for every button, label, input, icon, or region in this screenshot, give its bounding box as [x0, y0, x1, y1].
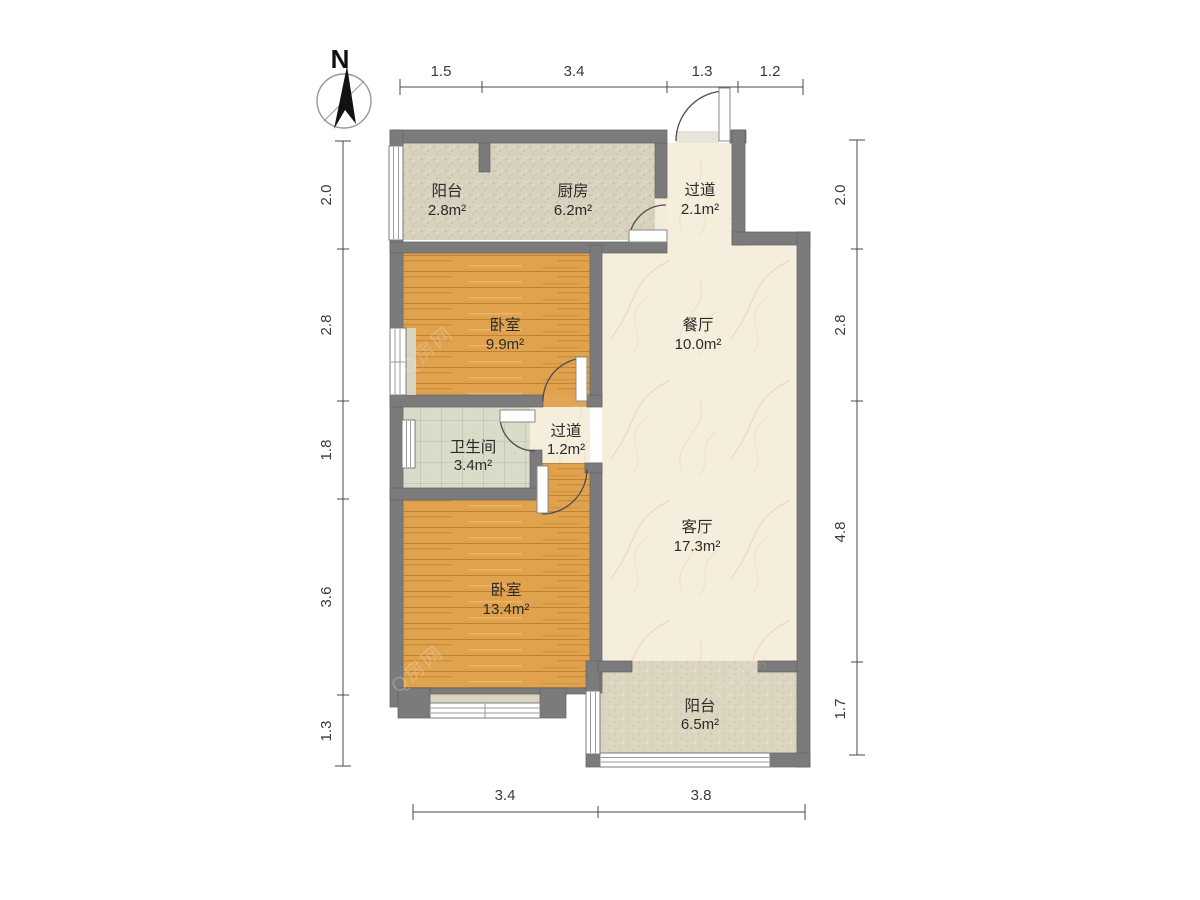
top-dimension-labels: 1.5 3.4 1.3 1.2 — [431, 63, 781, 80]
wall-segment — [540, 688, 566, 718]
room-name: 厨房 — [557, 182, 588, 200]
room-name: 过道 — [550, 422, 581, 440]
room-area: 17.3m² — [674, 538, 721, 555]
right-dimension-labels: 2.0 2.8 4.8 1.7 — [832, 185, 849, 720]
top-dimension-line — [400, 79, 803, 95]
room-area: 2.8m² — [428, 202, 466, 219]
dim-label: 3.4 — [564, 63, 585, 80]
wall-segment — [797, 232, 810, 767]
room-name: 卧室 — [490, 581, 521, 599]
room-area: 3.4m² — [454, 457, 492, 474]
bottom-dimension-labels: 3.4 3.8 — [495, 787, 712, 804]
dim-label: 3.8 — [691, 787, 712, 804]
dim-label: 1.5 — [431, 63, 452, 80]
room-name: 阳台 — [684, 697, 715, 715]
room-area: 6.2m² — [554, 202, 592, 219]
room-area: 9.9m² — [486, 336, 524, 353]
dim-label: 3.4 — [495, 787, 516, 804]
wall-segment — [390, 130, 403, 146]
wall-segment — [390, 488, 542, 500]
wall-segment — [479, 143, 490, 172]
wall-segment — [390, 395, 543, 407]
dim-label: 1.3 — [318, 721, 335, 742]
floor-plan-canvas: N 1.5 3.4 1.3 1.2 3.4 3.8 2.0 2.8 1.8 3.… — [0, 0, 1200, 900]
dim-label: 2.0 — [832, 185, 849, 206]
wall-segment — [590, 245, 602, 405]
bedroom-south-floor-upper — [542, 463, 590, 500]
compass: N — [317, 44, 371, 129]
room-area: 2.1m² — [681, 201, 719, 218]
dim-label: 4.8 — [832, 522, 849, 543]
dim-label: 1.3 — [692, 63, 713, 80]
right-dimension-line — [849, 140, 865, 755]
room-name: 阳台 — [431, 182, 462, 200]
room-name: 餐厅 — [682, 316, 713, 334]
floor-plan-page: N 1.5 3.4 1.3 1.2 3.4 3.8 2.0 2.8 1.8 3.… — [0, 0, 1200, 900]
room-name: 卧室 — [489, 316, 520, 334]
dim-label: 2.8 — [832, 315, 849, 336]
wall-segment — [390, 242, 667, 253]
wall-segment — [590, 463, 602, 693]
dim-label: 1.8 — [318, 440, 335, 461]
room-area: 1.2m² — [547, 441, 585, 458]
dim-label: 1.7 — [832, 699, 849, 720]
bedroom-south-bay-window — [430, 703, 540, 718]
balcony-south-window — [600, 753, 770, 767]
balcony-north-window — [389, 146, 403, 240]
wall-segment — [598, 661, 632, 672]
wall-segment — [390, 395, 403, 707]
room-name: 客厅 — [681, 518, 712, 536]
room-area: 13.4m² — [483, 601, 530, 618]
room-area: 6.5m² — [681, 716, 719, 733]
balcony-south-west-window — [586, 691, 600, 754]
wall-segment — [732, 130, 745, 245]
left-dimension-labels: 2.0 2.8 1.8 3.6 1.3 — [318, 185, 335, 742]
wall-segment — [587, 395, 602, 407]
entrance-threshold — [676, 131, 719, 143]
left-dimension-line — [335, 141, 351, 766]
dim-label: 1.2 — [760, 63, 781, 80]
dim-label: 2.0 — [318, 185, 335, 206]
wall-segment — [390, 130, 667, 143]
dim-label: 2.8 — [318, 315, 335, 336]
bathroom-window — [402, 420, 415, 468]
room-name: 卫生间 — [450, 438, 497, 456]
wall-segment — [655, 143, 667, 198]
room-name: 过道 — [684, 181, 715, 199]
wall-segment — [770, 753, 810, 767]
bottom-dimension-line — [413, 804, 805, 820]
dining-living-floor — [602, 245, 797, 661]
room-area: 10.0m² — [675, 336, 722, 353]
dim-label: 3.6 — [318, 587, 335, 608]
